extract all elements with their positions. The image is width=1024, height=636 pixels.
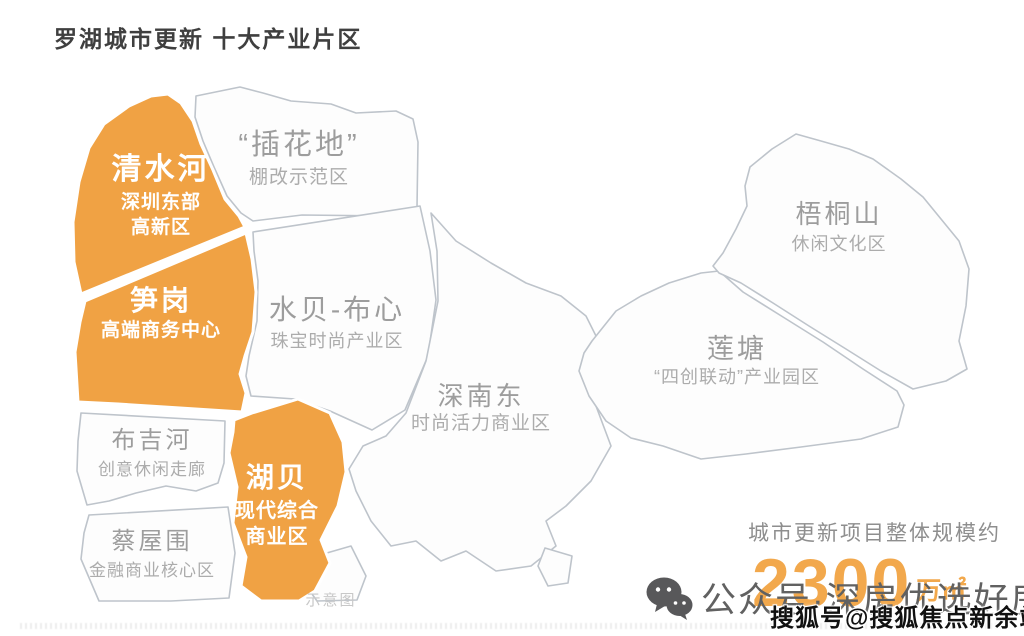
region-subtitle: 时尚活力商业区 <box>411 413 551 436</box>
region-subtitle: 珠宝时尚产业区 <box>269 331 405 353</box>
region-subtitle: 高新区 <box>112 217 211 240</box>
region-chahuadi-label: “插花地” 棚改示范区 <box>238 128 359 190</box>
region-shuibei-label: 水贝-布心 珠宝时尚产业区 <box>269 293 405 352</box>
region-name: 水贝-布心 <box>269 293 405 327</box>
region-bujihe-label: 布吉河 创意休闲走廊 <box>98 427 206 480</box>
region-name: 深南东 <box>411 381 551 412</box>
region-name: 梧桐山 <box>792 199 887 230</box>
region-name: 湖贝 <box>235 461 319 495</box>
region-name: 布吉河 <box>98 427 206 456</box>
region-shennandong-label: 深南东 时尚活力商业区 <box>411 381 551 436</box>
sohu-watermark: 搜狐号@搜狐焦点新余站 <box>770 598 1024 633</box>
region-liantang-label: 莲塘 “四创联动”产业园区 <box>654 333 820 389</box>
schematic-note: 示意图 <box>305 589 356 610</box>
region-subtitle: 高端商务中心 <box>101 320 221 343</box>
region-subtitle: 金融商业核心区 <box>89 561 215 581</box>
region-subtitle: 棚改示范区 <box>238 167 359 190</box>
region-name: 蔡屋围 <box>89 528 215 557</box>
region-subtitle: 创意休闲走廊 <box>98 460 206 480</box>
stats-caption: 城市更新项目整体规模约 <box>748 517 1001 547</box>
region-wutongshan-label: 梧桐山 休闲文化区 <box>792 199 887 256</box>
region-sungang-label: 笋岗 高端商务中心 <box>101 284 221 342</box>
wechat-icon <box>645 576 693 620</box>
region-subtitle: “四创联动”产业园区 <box>654 367 820 389</box>
region-name: 清水河 <box>112 152 211 188</box>
region-name: “插花地” <box>238 128 359 163</box>
region-subtitle: 休闲文化区 <box>792 234 887 256</box>
region-hubei-label: 湖贝 现代综合 商业区 <box>235 461 319 549</box>
region-subtitle: 商业区 <box>235 525 319 549</box>
region-name: 笋岗 <box>101 284 221 318</box>
map-fragment-shape <box>538 548 572 586</box>
region-name: 莲塘 <box>654 333 820 365</box>
region-caiwuwei-label: 蔡屋围 金融商业核心区 <box>89 528 215 581</box>
region-qingshuihe-label: 清水河 深圳东部 高新区 <box>112 152 211 240</box>
region-subtitle: 深圳东部 <box>112 192 211 215</box>
region-subtitle: 现代综合 <box>235 499 319 523</box>
